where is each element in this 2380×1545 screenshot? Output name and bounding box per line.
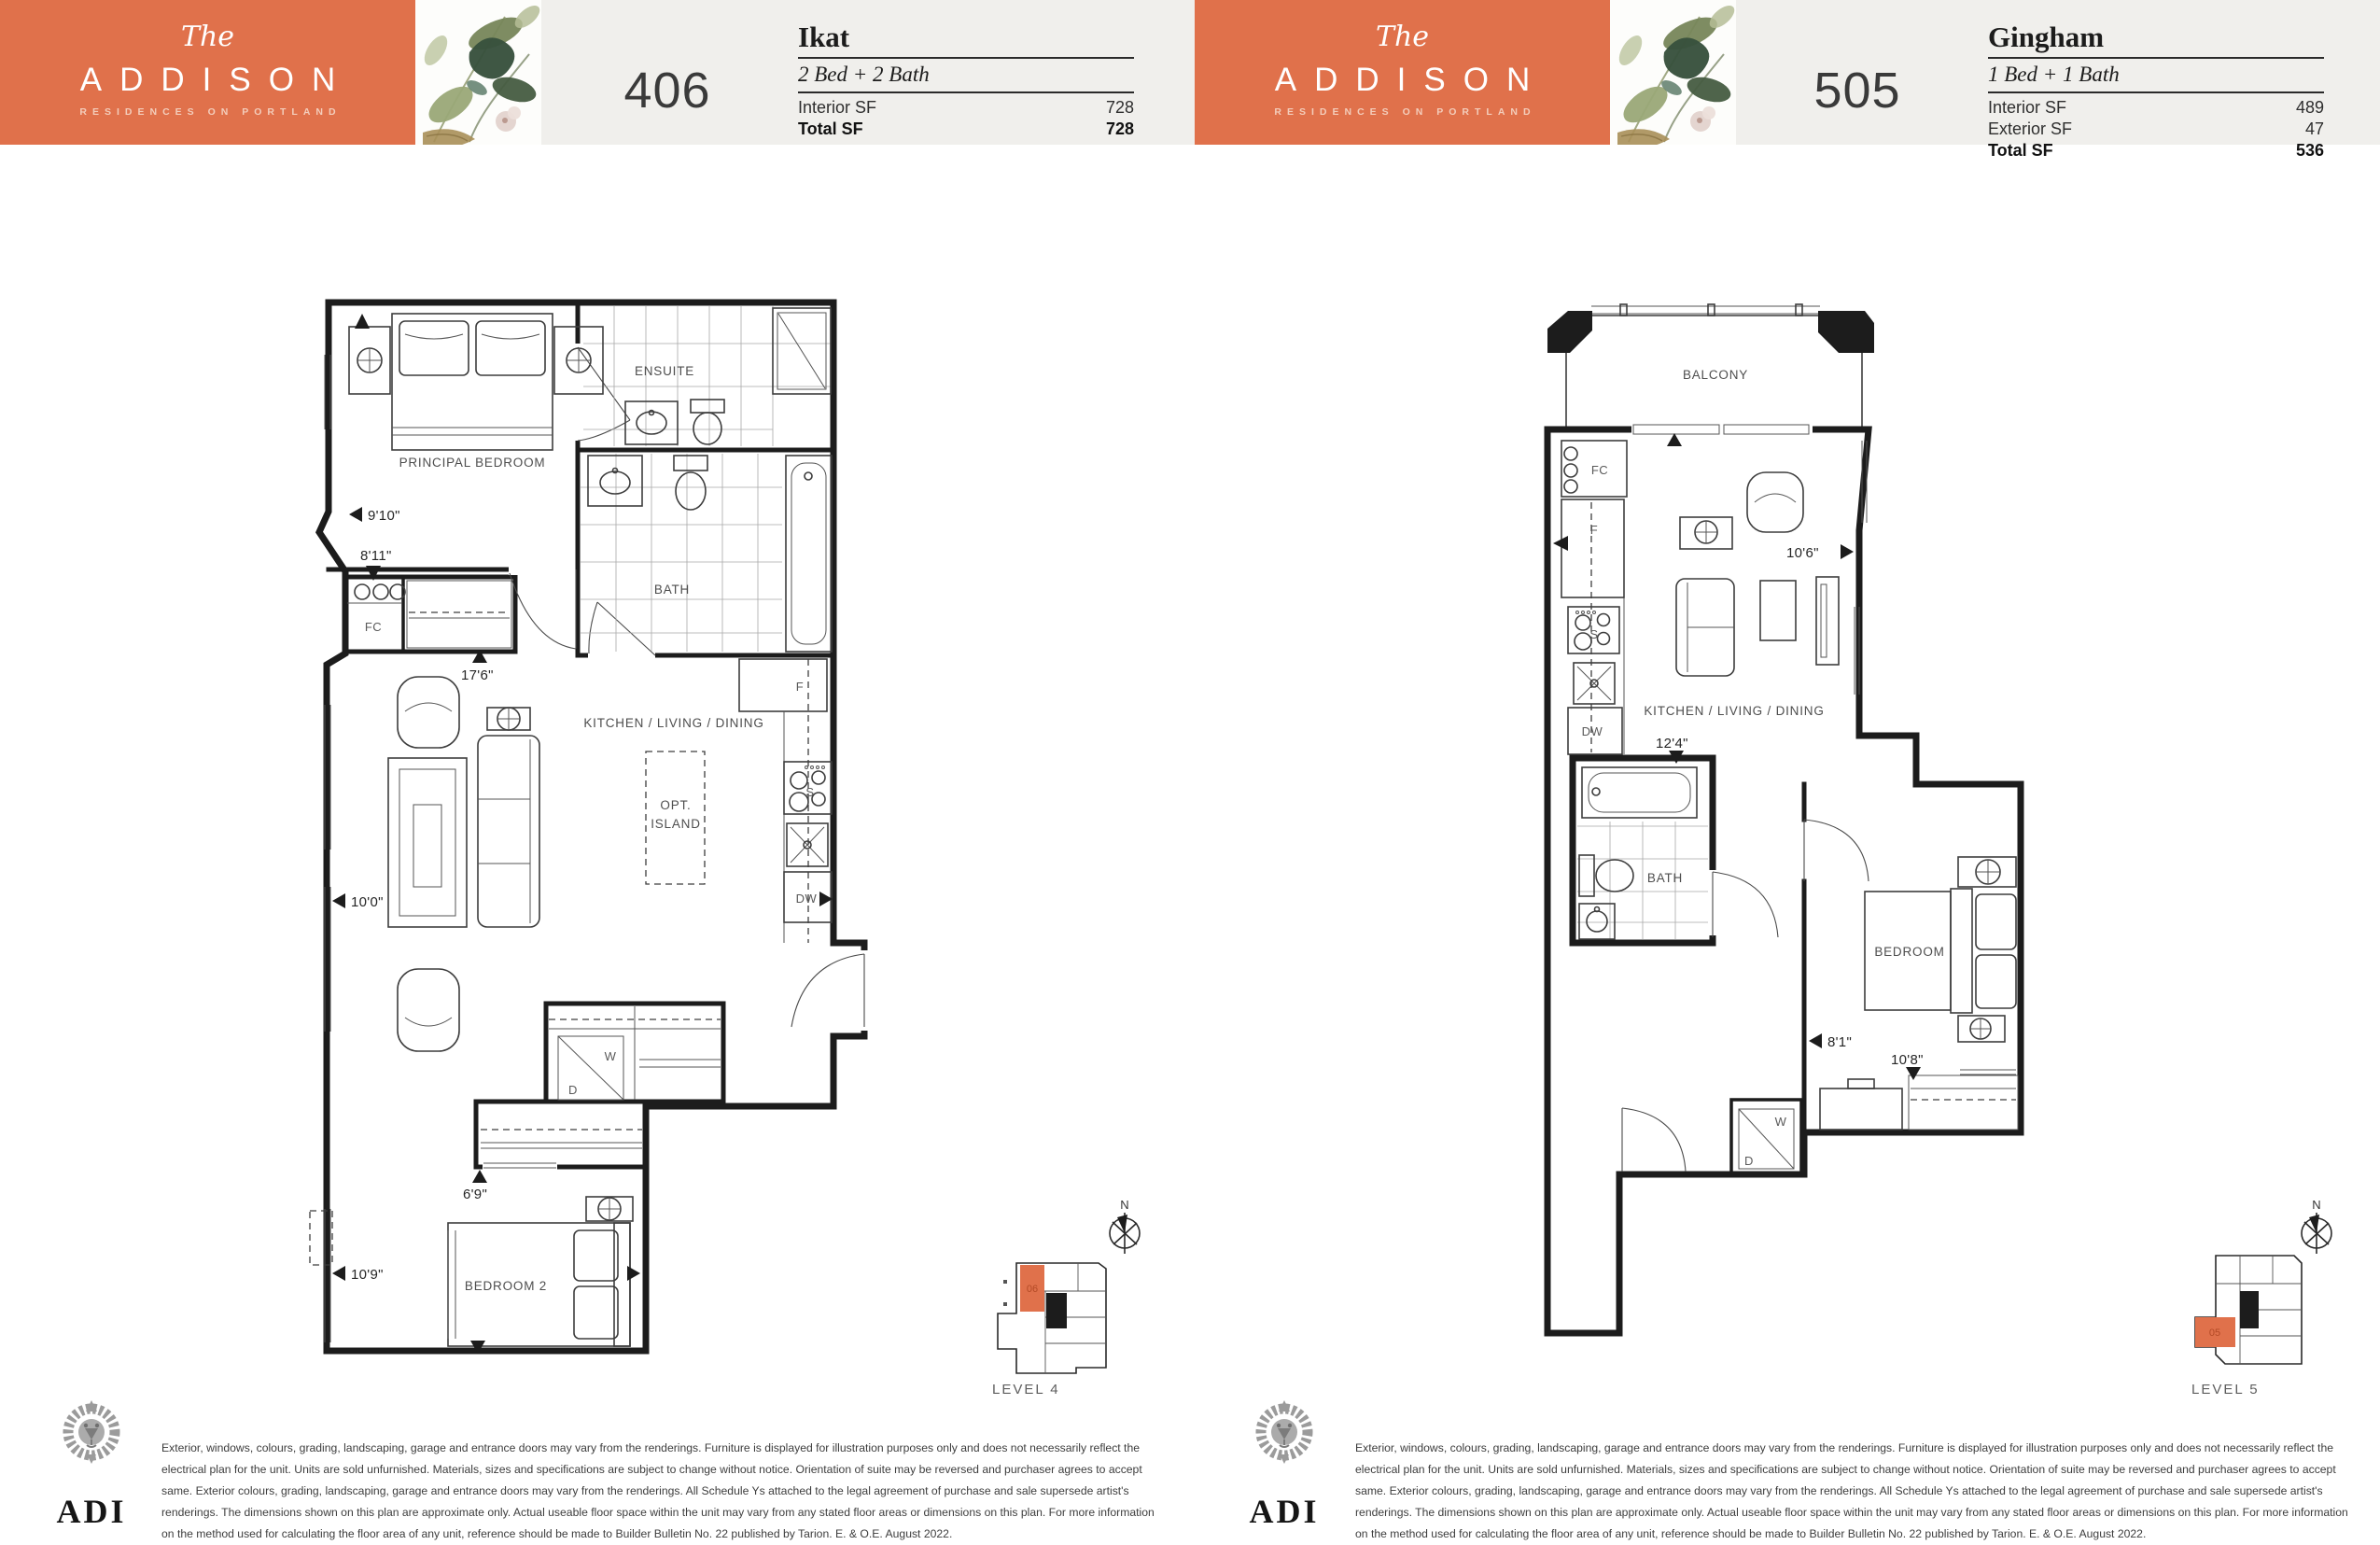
brand-tagline: RESIDENCES ON PORTLAND (0, 106, 415, 118)
unit-type: 1 Bed + 1 Bath (1988, 63, 2324, 87)
unit-number: 505 (1731, 62, 1983, 119)
island-label-1: OPT. (660, 798, 691, 812)
adi-wordmark: ADI (54, 1492, 129, 1531)
dim-10-0: 10'0" (351, 894, 384, 910)
fc-label: FC (365, 620, 382, 634)
compass-north-label: N (2312, 1198, 2320, 1212)
divider (798, 91, 1134, 93)
building-footprint: 05 (2195, 1256, 2302, 1364)
dim-8-11: 8'11" (360, 548, 392, 564)
dim-10-9: 10'9" (351, 1267, 384, 1283)
stove-label: S (805, 785, 814, 799)
fridge-label: F (1590, 523, 1598, 537)
brand-panel-left: The ADDISON RESIDENCES ON PORTLAND (0, 0, 415, 145)
brand-the: The (0, 21, 415, 53)
unit-number: 406 (541, 62, 793, 119)
washer-label: W (605, 1049, 617, 1063)
unit-name: Gingham (1988, 22, 2324, 52)
unit-info-block: Ikat 2 Bed + 2 Bath Interior SF 728 Tota… (798, 22, 1134, 140)
disclaimer-text: Exterior, windows, colours, grading, lan… (1355, 1438, 2361, 1545)
adi-wordmark: ADI (1247, 1492, 1322, 1531)
room-label-kitchen-living-dining: KITCHEN / LIVING / DINING (583, 716, 763, 730)
compass-icon (1110, 1213, 1140, 1254)
stat-label: Exterior SF (1988, 119, 2072, 140)
washer-label: W (1775, 1115, 1787, 1129)
stat-value: 728 (1106, 97, 1134, 119)
stat-label: Total SF (798, 119, 863, 140)
keyplan-unit-number: 05 (2209, 1327, 2220, 1339)
stat-row: Interior SF 489 (1988, 97, 2324, 119)
room-label-principal-bedroom: PRINCIPAL BEDROOM (399, 456, 546, 470)
compass-north-label: N (1120, 1198, 1128, 1212)
stat-label: Interior SF (1988, 97, 2066, 119)
keyplan-unit-number: 06 (1027, 1284, 1038, 1295)
dim-9-10: 9'10" (368, 508, 400, 524)
unit-type: 2 Bed + 2 Bath (798, 63, 1134, 87)
level-label: LEVEL 5 (2191, 1382, 2260, 1398)
room-label-bedroom-2: BEDROOM 2 (465, 1279, 547, 1293)
dishwasher-label: DW (796, 892, 818, 906)
floral-image (415, 0, 541, 145)
dim-17-6: 17'6" (461, 667, 494, 683)
building-footprint: 06 (998, 1263, 1106, 1373)
floral-image (1610, 0, 1736, 145)
brand-panel-right: The ADDISON RESIDENCES ON PORTLAND (1195, 0, 1610, 145)
dim-10-8: 10'8" (1891, 1052, 1924, 1068)
room-label-ensuite: ENSUITE (635, 364, 694, 378)
adi-lion-icon (58, 1393, 125, 1471)
dim-6-9: 6'9" (463, 1187, 487, 1202)
adi-lion-icon (1251, 1393, 1318, 1471)
stat-value: 47 (2305, 119, 2324, 140)
floorplan-406: 9'10" 8'11" 17'6" 10'0" 6'9" 10'9" PRINC… (308, 289, 868, 1391)
divider (1988, 91, 2324, 93)
stat-value: 489 (2296, 97, 2324, 119)
unit-info-block: Gingham 1 Bed + 1 Bath Interior SF 489 E… (1988, 22, 2324, 162)
island-label-2: ISLAND (651, 817, 701, 831)
room-label-balcony: BALCONY (1683, 368, 1748, 382)
stat-row: Interior SF 728 (798, 97, 1134, 119)
dishwasher-label: DW (1582, 724, 1603, 738)
stat-value: 536 (2296, 140, 2324, 162)
stat-label: Interior SF (798, 97, 876, 119)
stat-row: Total SF 728 (798, 119, 1134, 140)
stat-row: Total SF 536 (1988, 140, 2324, 162)
stat-row: Exterior SF 47 (1988, 119, 2324, 140)
brand-tagline: RESIDENCES ON PORTLAND (1195, 106, 1610, 118)
stove-label: S (1589, 627, 1598, 641)
brand-name: ADDISON (0, 62, 415, 99)
divider (798, 57, 1134, 59)
floorplan-sheet: The ADDISON RESIDENCES ON PORTLAND 406 I… (0, 0, 2380, 1540)
room-label-kitchen-living-dining: KITCHEN / LIVING / DINING (1644, 704, 1824, 718)
unit-name: Ikat (798, 22, 1134, 52)
fc-label: FC (1591, 463, 1608, 477)
dryer-label: D (1744, 1154, 1754, 1168)
dim-10-6: 10'6" (1786, 545, 1819, 561)
level-label: LEVEL 4 (992, 1382, 1060, 1398)
divider (1988, 57, 2324, 59)
dim-12-4: 12'4" (1656, 736, 1688, 751)
brand-name: ADDISON (1195, 62, 1610, 99)
stat-label: Total SF (1988, 140, 2053, 162)
compass-icon (2302, 1213, 2331, 1254)
room-label-bath: BATH (654, 583, 690, 597)
header-band: The ADDISON RESIDENCES ON PORTLAND 406 I… (0, 0, 2380, 145)
stat-value: 728 (1106, 119, 1134, 140)
brand-the: The (1195, 21, 1610, 53)
room-label-bath: BATH (1647, 871, 1683, 885)
disclaimer-text: Exterior, windows, colours, grading, lan… (161, 1438, 1168, 1545)
keyplan-level-4: N 06 LEVEL 4 (985, 1198, 1171, 1398)
dryer-label: D (568, 1083, 578, 1097)
dim-8-1: 8'1" (1827, 1034, 1852, 1050)
fridge-label: F (796, 680, 804, 694)
room-label-bedroom: BEDROOM (1874, 945, 1944, 959)
floorplan-505: 10'6" 12'4" 8'1" 10'8" BALCONY KITCHEN /… (1540, 299, 2081, 1400)
keyplan-level-5: N 05 LEVEL 5 (2184, 1198, 2371, 1398)
